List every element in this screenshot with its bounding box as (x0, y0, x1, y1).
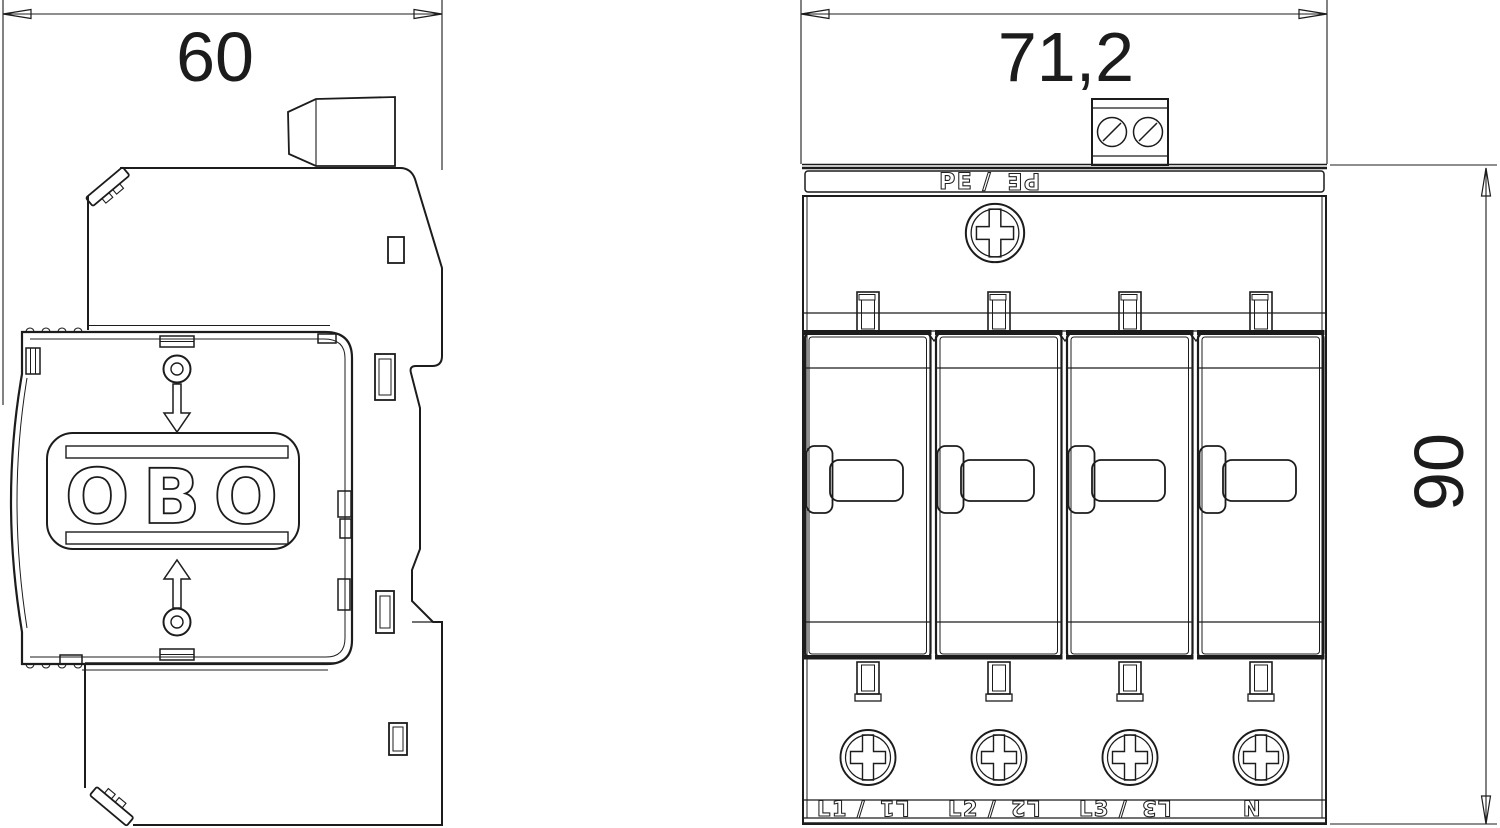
plate-clip-bottom-left (60, 655, 82, 664)
module-3 (1066, 330, 1194, 660)
terminal-label-strip: L1 / L1 L2 / L2 L3 / L3 N (803, 796, 1326, 821)
module-2 (935, 330, 1063, 660)
svg-text:L2: L2 (1010, 796, 1041, 820)
svg-text:N: N (1243, 797, 1262, 821)
svg-text:L2 /: L2 / (948, 797, 997, 821)
module-bottom-latches (855, 662, 1274, 701)
side-terminal-block (288, 97, 395, 166)
terminal-label-l3: L3 / L3 (1079, 796, 1171, 821)
svg-text:L3 /: L3 / (1079, 797, 1128, 821)
dimension-71-2-label: 71,2 (998, 18, 1134, 96)
obo-logo-text: OBO (65, 452, 291, 541)
phillips-screw-icon (972, 730, 1027, 785)
slotted-screw-icon (1098, 118, 1127, 147)
obo-logo: OBO (47, 433, 299, 549)
front-view: 71,2 90 (801, 0, 1497, 824)
terminal-label-n: N (1243, 797, 1262, 821)
release-indicator-top (164, 356, 191, 433)
pe-label: PE / PE (939, 168, 1040, 196)
drawing-svg: 60 (0, 0, 1500, 828)
din-clip-top (86, 167, 134, 211)
pe-label-right-rotated: PE (1006, 168, 1040, 193)
module-1 (804, 330, 932, 660)
terminal-label-l2: L2 / L2 (948, 796, 1040, 821)
phillips-screw-icon (1234, 730, 1289, 785)
side-slot-lower (389, 723, 407, 755)
svg-text:L3: L3 (1141, 796, 1172, 820)
dimension-90-label: 90 (1400, 433, 1478, 511)
terminal-screws (841, 730, 1289, 785)
side-slot-mid-lower (376, 591, 394, 633)
slotted-screw-icon (1134, 118, 1163, 147)
din-clip-bottom (90, 782, 138, 826)
technical-drawing-surge-protector: 60 (0, 0, 1500, 828)
side-front-plate: OBO (11, 326, 352, 671)
svg-text:L1: L1 (879, 796, 910, 820)
side-slot-mid-upper (375, 354, 395, 400)
front-housing: PE / PE (802, 165, 1327, 825)
module-4 (1197, 330, 1325, 660)
plate-clip-top-left (26, 348, 40, 374)
dimension-width-60: 60 (3, 0, 442, 405)
release-indicator-bottom (164, 560, 191, 636)
phillips-screw-icon (841, 730, 896, 785)
pe-label-left: PE / (939, 170, 992, 195)
dimension-width-71-2: 71,2 (801, 0, 1327, 164)
dimension-height-90: 90 (1330, 165, 1497, 824)
front-terminal-block (1092, 99, 1168, 165)
svg-text:L1 /: L1 / (817, 797, 866, 821)
side-slot-upper (388, 237, 404, 263)
protection-modules (804, 330, 1325, 660)
phillips-screw-icon (966, 204, 1024, 262)
module-top-latches (857, 292, 1272, 331)
phillips-screw-icon (1103, 730, 1158, 785)
dimension-60-label: 60 (176, 18, 254, 96)
side-view: 60 (3, 0, 442, 826)
pe-strip (805, 171, 1324, 192)
terminal-label-l1: L1 / L1 (817, 796, 909, 821)
